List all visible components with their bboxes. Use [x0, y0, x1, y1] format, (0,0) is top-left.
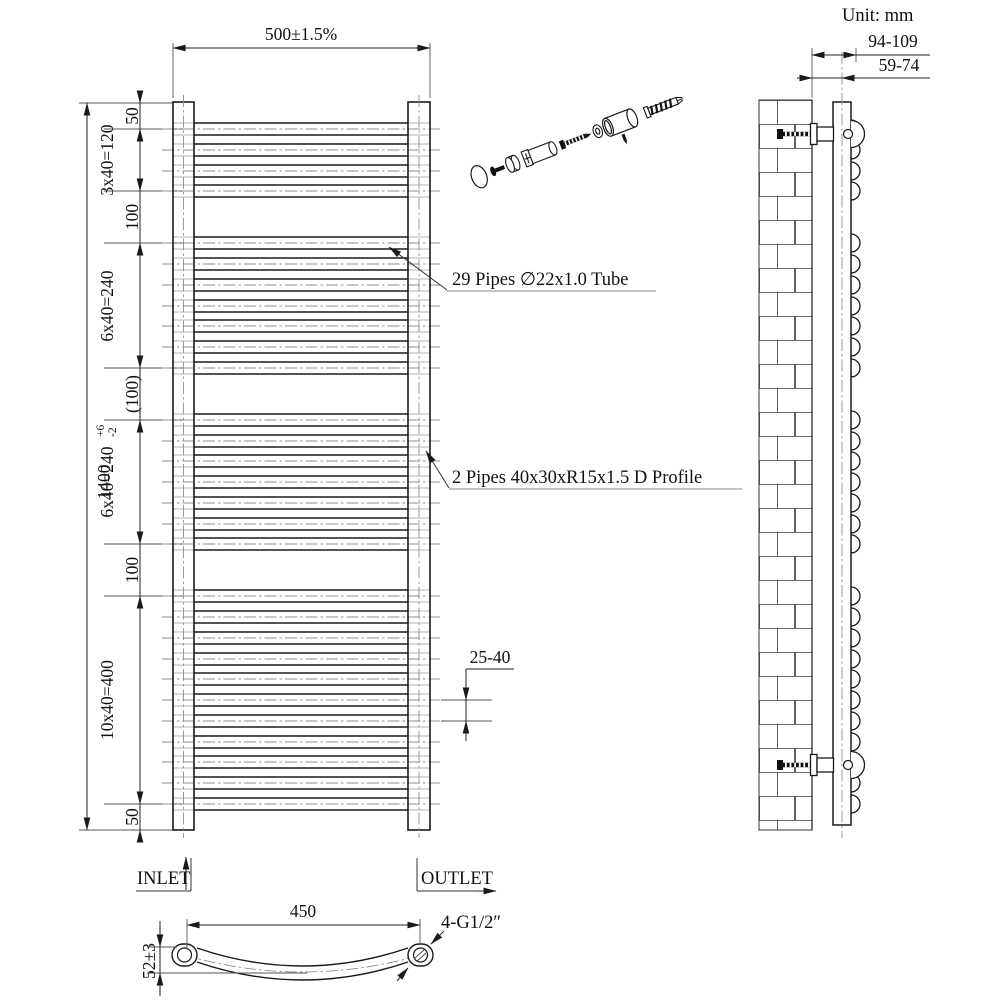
wall-section	[759, 100, 812, 830]
bottom-view: 450 52±3 4-G1/2″	[139, 901, 501, 996]
unit-label: Unit: mm	[842, 6, 914, 26]
chain-dim-4: (100)	[122, 375, 142, 413]
pipes-label: 29 Pipes ∅22x1.0 Tube	[452, 270, 628, 290]
wall-to-center-dim-text: 59-74	[879, 55, 920, 75]
inlet-marker: INLET	[136, 857, 191, 891]
long-screw	[559, 129, 593, 149]
curved-tube-top-edge	[197, 948, 408, 966]
pipe-end-bumps	[851, 120, 860, 813]
chain-dim-6: 100	[122, 557, 142, 584]
curve-depth-dimension: 52±3	[139, 921, 307, 996]
centers-dim-text: 450	[290, 901, 317, 921]
washer	[591, 123, 604, 138]
wall-to-front-dim-text: 94-109	[868, 31, 918, 51]
profile-label: 2 Pipes 40x30xR15x1.5 D Profile	[452, 468, 702, 488]
mounting-hardware-diagram	[468, 88, 691, 201]
pipe-gap-dimension: 25-40	[441, 647, 514, 741]
chain-dim-8: 50	[122, 808, 142, 826]
chain-dim-5: 6x40=240	[97, 446, 117, 517]
centers-dimension: 450	[187, 901, 420, 949]
curve-depth-dim-text: 52±3	[139, 943, 159, 979]
pipes-callout: 29 Pipes ∅22x1.0 Tube	[389, 247, 656, 291]
outlet-label: OUTLET	[421, 869, 493, 889]
collar-ring	[504, 154, 522, 173]
depth-dimensions: 94-109 59-74	[797, 31, 930, 98]
chain-dimension-texts: 50 3x40=120 100 6x40=240 (100) 6x40=240 …	[97, 107, 142, 826]
bracket-body	[521, 140, 559, 167]
chain-dim-0: 50	[122, 107, 142, 125]
height-tolerance-minus: -2	[107, 427, 119, 437]
right-connection	[408, 944, 433, 966]
side-view: 94-109 59-74	[759, 31, 930, 838]
tiny-screw	[621, 134, 628, 145]
front-view: 500±1.5% 1400 +6 -2 50 3x40=120 100 6x40…	[79, 24, 742, 891]
curved-tube-bottom-edge	[197, 962, 408, 980]
chain-dim-1: 3x40=120	[97, 124, 117, 195]
extension-lines	[79, 43, 430, 830]
width-dimension: 500±1.5%	[173, 24, 430, 48]
gap-dim-text: 25-40	[470, 647, 511, 667]
height-tolerance-plus: +6	[95, 425, 107, 437]
wall-anchor	[643, 93, 684, 118]
horizontal-pipes	[162, 123, 440, 810]
thread-label: 4-G1/2″	[441, 913, 501, 933]
chain-dim-7: 10x40=400	[97, 660, 117, 740]
outlet-marker: OUTLET	[417, 858, 496, 891]
width-dim-text: 500±1.5%	[265, 24, 337, 44]
inlet-label: INLET	[137, 869, 190, 889]
spacer-sleeve	[600, 107, 639, 137]
chain-dim-2: 100	[122, 204, 142, 231]
chain-dim-3: 6x40=240	[97, 270, 117, 341]
towel-radiator-drawing: Unit: mm	[0, 0, 1000, 1000]
technical-drawing-page: Unit: mm	[0, 0, 1000, 1000]
small-screw	[489, 162, 506, 177]
cover-cap	[468, 163, 490, 190]
profile-callout: 2 Pipes 40x30xR15x1.5 D Profile	[426, 451, 742, 489]
